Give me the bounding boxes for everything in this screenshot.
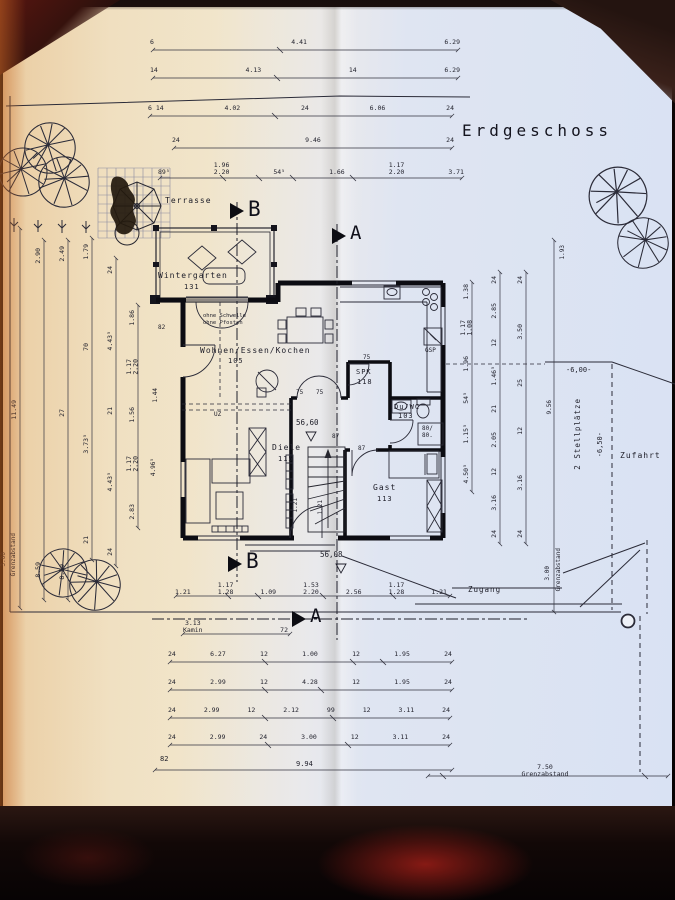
dim-82-wall: 82 — [158, 325, 165, 332]
dim-value: 4.13 — [246, 67, 262, 74]
dim-121: 1.21 — [293, 498, 300, 512]
dim-value: 8.59 — [35, 562, 42, 578]
dim-value: 12 — [352, 679, 360, 686]
dim-value: 4.02 — [225, 105, 241, 112]
room-label-spk: SPK — [356, 368, 372, 376]
sofa — [186, 459, 210, 523]
dim-value: 3.73⁵ — [83, 434, 90, 454]
label-level-650: -6,50- — [596, 432, 604, 457]
label-zufahrt: Zufahrt — [620, 451, 661, 460]
dim-value: 1.95 — [394, 679, 410, 686]
dim-956: 9.56 — [547, 400, 554, 414]
dim-chain-bottom-4: 242.99124.28121.9524 — [168, 679, 452, 686]
dim-value: 3.11 — [393, 734, 409, 741]
dim-value: 21 — [107, 407, 114, 415]
dim-chain-kamin: 3.13 Kamin72 — [183, 620, 288, 634]
label-level-600: -6,00- — [566, 366, 591, 374]
dim-value: 24 — [517, 276, 524, 284]
dim-value: 2.12 — [283, 707, 299, 714]
dim-value: 12 — [491, 468, 498, 476]
dim-value: 8.59 — [59, 564, 66, 580]
dim-value: 12 — [247, 707, 255, 714]
wintergarten-glazing — [150, 225, 278, 304]
dim-chain-left-2: 2.908.59 — [32, 248, 44, 578]
dim-value: 1.96 — [463, 356, 470, 372]
dim-value: 25 — [517, 379, 524, 387]
dim-value: 24 — [301, 105, 309, 112]
dim-value: 24 — [444, 679, 452, 686]
dim-87: 87 — [332, 434, 339, 441]
dim-value: 72 — [280, 627, 288, 634]
dim-grenzabstand-bottom: 7.50 Grenzabstand — [500, 764, 590, 779]
dim-value: 14 — [150, 67, 158, 74]
dim-value: 21 — [491, 405, 498, 413]
dim-value: 3.50 — [517, 324, 524, 340]
section-letter-b-top: B — [248, 197, 261, 221]
label-zugang: Zugang — [468, 586, 501, 595]
label-stellplaetze: 2 Stellplätze — [574, 398, 583, 470]
dim-value: 1.00 — [302, 651, 318, 658]
dim-value: 12 — [363, 707, 371, 714]
dim-chain-top-5: 89⁵1.96 2.2054⁵1.661.17 2.203.71 — [158, 162, 464, 176]
dim-193: 1.93 — [560, 245, 567, 259]
dim-value: 1.96 2.20 — [214, 162, 230, 176]
dim-chain-left-4: 1.79703.73⁵21 — [80, 244, 92, 544]
room-area-duwc: 103 — [398, 412, 414, 420]
dim-994: 9.94 — [296, 760, 313, 768]
dim-value: 3.16 — [491, 495, 498, 511]
dim-value: 2.05 — [491, 432, 498, 448]
dim-value: 4.28 — [302, 679, 318, 686]
section-letter-b-bottom: B — [246, 549, 259, 573]
dim-value: 6.29 — [444, 39, 460, 46]
dim-value: 6 — [150, 39, 154, 46]
dim-value: 1.38 — [463, 284, 470, 300]
dim-value: 4.43⁵ — [107, 331, 114, 351]
dim-value: 24 — [168, 679, 176, 686]
dim-grenzabstand-left-value: 3.00 — [1, 552, 8, 566]
dim-value: 24 — [259, 734, 267, 741]
elevation-5660: 56,60 — [296, 419, 319, 428]
dim-value: 1.56 — [129, 407, 136, 423]
room-label-duwc: Du/WC — [394, 403, 420, 411]
dim-chain-right-3: 243.5025123.1624 — [514, 276, 526, 538]
dim-value: 21 — [83, 536, 90, 544]
dim-value: 70 — [83, 343, 90, 351]
dim-chain-top-4: 249.4624 — [172, 137, 454, 144]
dim-value: 1.17 2.20 — [126, 456, 139, 472]
dim-value: 1.17 2.20 — [126, 359, 139, 375]
section-letter-a-top: A — [350, 223, 361, 245]
dim-value: 3.13 Kamin — [183, 620, 203, 634]
label-gsp: GSP — [425, 348, 436, 355]
chimney-shaft — [249, 428, 266, 476]
dim-value: 1.17 1.28 — [218, 582, 234, 596]
dark-blob — [110, 177, 136, 235]
dim-value: 24 — [172, 137, 180, 144]
dim-value: 24 — [491, 276, 498, 284]
room-label-terrasse: Terrasse — [165, 196, 212, 205]
dim-chain-left-1: 11.49 — [8, 300, 20, 520]
wardrobe — [427, 480, 442, 532]
stove — [423, 289, 438, 311]
dim-value: 1.46⁵ — [491, 366, 498, 386]
dim-value: 1.17 1.08 — [460, 320, 473, 336]
dim-87: 87 — [358, 446, 365, 453]
dim-value: 99 — [327, 707, 335, 714]
dim-value: 6 14 — [148, 105, 164, 112]
dim-value: 4.43⁵ — [107, 472, 114, 492]
dim-value: 1.09 — [260, 589, 276, 596]
dim-value: 2.99 — [204, 707, 220, 714]
dim-value: 24 — [107, 266, 114, 274]
room-area-gast: 113 — [377, 495, 393, 503]
dim-chain-left-3: 2.49278.59 — [56, 246, 68, 580]
dim-chain-left-6: 1.861.17 2.201.561.17 2.202.83 — [126, 310, 138, 520]
dim-grenzabstand-right-value: 3.00 — [545, 566, 552, 580]
page-title: Erdgeschoss — [462, 122, 612, 140]
dim-82-bottom: 82 — [160, 755, 168, 763]
floorplan: Erdgeschoss Terrasse Wintergarten 131 oh… — [0, 0, 675, 900]
dim-chain-bottom-3: 246.27121.00121.9524 — [168, 651, 452, 658]
room-label-wintergarten: Wintergarten — [158, 271, 228, 280]
dim-value: 12 — [352, 651, 360, 658]
dim-door-75: 75 — [316, 390, 323, 397]
interior-walls — [291, 362, 443, 538]
shrub-row — [10, 218, 90, 233]
dim-value: 1.79 — [83, 244, 90, 260]
dim-value: 1.53 2.20 — [303, 582, 319, 596]
room-label-diele: Diele — [272, 443, 301, 452]
room-label-gast: Gast — [373, 483, 396, 492]
room-area-spk: 118 — [357, 378, 373, 386]
dim-value: 1.86 — [129, 310, 136, 326]
label-grenzabstand-right: Grenzabstand — [556, 548, 563, 591]
dim-value: 2.83 — [129, 504, 136, 520]
dim-chain-top-1: 64.416.29 — [150, 39, 460, 46]
dim-value: 12 — [260, 679, 268, 686]
dim-chain-bottom-5: 242.99122.1299123.1124 — [168, 707, 450, 714]
room-area-wintergarten: 131 — [184, 283, 200, 291]
note-ohne-schwelle: ohne Schwelle ohne Pfosten — [203, 313, 246, 328]
dim-value: 6.29 — [444, 67, 460, 74]
kitchen-sink — [384, 286, 400, 299]
dim-value: 12 — [491, 339, 498, 347]
dim-value: 24 — [446, 105, 454, 112]
dim-value: 24 — [107, 548, 114, 556]
dim-value: 2.49 — [59, 246, 66, 262]
dim-value: 14 — [349, 67, 357, 74]
dim-value: 24 — [444, 651, 452, 658]
dim-value: 1.17 1.28 — [389, 582, 405, 596]
dim-chain-right-2: 242.85121.46⁵212.05123.1624 — [488, 276, 500, 538]
dim-value: 3.71 — [448, 169, 464, 176]
dim-value: 3.16 — [517, 475, 524, 491]
dim-value: 4.50⁵ — [463, 464, 470, 484]
dim-value: 6.06 — [370, 105, 386, 112]
dim-value: 11.49 — [11, 400, 18, 420]
dim-value: 12 — [351, 734, 359, 741]
dimension-lines — [20, 47, 668, 779]
dim-value: 12 — [260, 651, 268, 658]
dim-value: 2.99 — [210, 679, 226, 686]
dim-door-75: 75 — [363, 355, 370, 362]
dim-value: 3.11 — [399, 707, 415, 714]
label-grenzabstand-left: Grenzabstand — [11, 533, 18, 576]
dining-table — [287, 317, 323, 343]
dim-value: 1.21 — [431, 589, 447, 596]
coffee-table — [216, 492, 243, 519]
dim-value: 27 — [59, 409, 66, 417]
dim-value: 1.66 — [329, 169, 345, 176]
dim-value: 2.99 — [210, 734, 226, 741]
dim-chain-left-5: 244.43⁵214.43⁵24 — [104, 266, 116, 556]
label-uz: UZ — [214, 412, 221, 419]
dim-value: 1.21 — [175, 589, 191, 596]
dim-value: 12 — [517, 427, 524, 435]
dim-value: 9.46 — [305, 137, 321, 144]
dim-496: 4.96⁵ — [151, 458, 158, 476]
dim-value: 24 — [442, 734, 450, 741]
dim-value: 3.00 — [301, 734, 317, 741]
dim-chain-bottom-6: 242.99243.00123.1124 — [168, 734, 450, 741]
armchair — [188, 246, 216, 270]
pillow — [427, 454, 437, 474]
dim-value: 1.17 2.20 — [389, 162, 405, 176]
elevation-5608: 56,08 — [320, 551, 343, 560]
room-area-wohnen: 105 — [228, 357, 244, 365]
dim-value: 2.85 — [491, 303, 498, 319]
room-label-wohnen: Wohnen/Essen/Kochen — [200, 346, 311, 355]
dim-chain-bottom-1: 1.211.17 1.281.091.53 2.202.561.17 1.281… — [175, 582, 447, 596]
dim-value: 24 — [491, 530, 498, 538]
label-shower-80: 80/ 80. — [422, 425, 433, 439]
dim-door-75: 75 — [296, 390, 303, 397]
dim-value: 54⁵ — [273, 169, 285, 176]
dim-value: 1.15⁵ — [463, 424, 470, 444]
dim-value: 24 — [168, 651, 176, 658]
dim-121: 1.21 — [318, 500, 325, 514]
dim-value: 24 — [168, 734, 176, 741]
room-area-diele: 115 — [278, 455, 294, 463]
dim-chain-right-1: 1.381.17 1.081.9654⁵1.15⁵4.50⁵ — [460, 284, 472, 484]
armchair — [228, 240, 256, 264]
section-letter-a-bottom: A — [310, 606, 321, 628]
dim-value: 24 — [442, 707, 450, 714]
dim-value: 6.27 — [210, 651, 226, 658]
photo-of-floorplan: Erdgeschoss Terrasse Wintergarten 131 oh… — [0, 0, 675, 900]
dim-value: 54⁵ — [463, 392, 470, 404]
dim-value: 1.95 — [394, 651, 410, 658]
dim-value: 89⁵ — [158, 169, 170, 176]
dim-144: 1.44 — [153, 388, 160, 402]
stairs — [308, 447, 345, 532]
dim-value: 24 — [446, 137, 454, 144]
dim-chain-top-3: 6 144.02246.0624 — [148, 105, 454, 112]
dim-value: 2.56 — [346, 589, 362, 596]
dim-chain-top-2: 144.13146.29 — [150, 67, 460, 74]
sofa — [212, 459, 250, 483]
dim-value: 2.90 — [35, 248, 42, 264]
dim-value: 4.41 — [291, 39, 307, 46]
dim-value: 24 — [168, 707, 176, 714]
dim-value: 24 — [517, 530, 524, 538]
